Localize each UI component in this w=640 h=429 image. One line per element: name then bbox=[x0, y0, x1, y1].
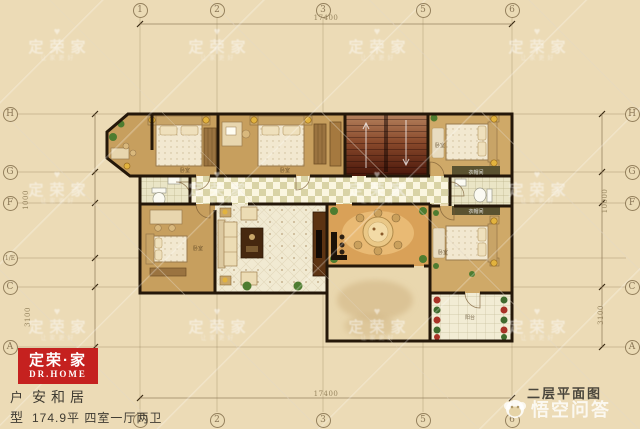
plant bbox=[433, 263, 439, 269]
plant bbox=[469, 271, 475, 277]
balcony-label: 阳台 bbox=[465, 314, 475, 321]
bed-bedroom1 bbox=[148, 116, 210, 166]
bedroom2-label: 卧室 bbox=[280, 167, 290, 174]
wardrobe bbox=[204, 128, 216, 166]
dim-bottom: 17400 bbox=[306, 390, 346, 398]
logo-chinese: 定荣·家 bbox=[29, 353, 87, 370]
plant bbox=[433, 210, 439, 216]
bed-bedroom2 bbox=[250, 116, 312, 166]
floorplan-canvas: 卧室 卧室 卧室 卧室 卧室 阳台 衣帽间 衣帽间 ♥定荣家让家更好♥定荣家让家… bbox=[0, 0, 640, 429]
dim-right-lower: 3100 bbox=[597, 295, 605, 335]
bedroom4-label: 卧室 bbox=[438, 249, 448, 256]
bed-bedroom5 bbox=[146, 234, 187, 264]
closet-label: 衣帽间 bbox=[468, 169, 483, 176]
wardrobe bbox=[314, 124, 326, 164]
cabinet bbox=[150, 268, 186, 276]
dim-left-lower: 3100 bbox=[24, 297, 32, 337]
dim-left-upper: 1000 bbox=[22, 180, 30, 220]
plant bbox=[109, 133, 117, 141]
dim-right-upper: 10000 bbox=[601, 181, 609, 221]
house-spec: 174.9平 四室一厅两卫 bbox=[32, 409, 162, 426]
bedroom1-label: 卧室 bbox=[180, 167, 190, 174]
toilet-bath2 bbox=[474, 188, 492, 202]
plant bbox=[419, 207, 427, 215]
closet-label: 衣帽间 bbox=[468, 208, 483, 215]
cabinet bbox=[330, 122, 341, 166]
monkey-icon bbox=[503, 397, 527, 421]
plant bbox=[243, 282, 252, 291]
sink bbox=[455, 179, 466, 186]
plant bbox=[294, 282, 303, 291]
desk bbox=[150, 210, 182, 224]
info-label-hu: 户 bbox=[10, 387, 32, 406]
lamp bbox=[124, 163, 130, 169]
plant bbox=[330, 207, 338, 215]
bedroom3-label: 卧室 bbox=[435, 142, 445, 149]
logo-english: DR.HOME bbox=[29, 369, 87, 379]
sink bbox=[168, 177, 180, 184]
desk bbox=[111, 148, 129, 159]
plant bbox=[419, 255, 427, 263]
wukong-qa-watermark: 悟空问答 bbox=[503, 396, 611, 422]
house-info: 户 安和居 型 174.9平 四室一厅两卫 bbox=[10, 387, 162, 427]
info-label-xing: 型 bbox=[10, 407, 32, 426]
dr-home-logo: 定荣·家 DR.HOME bbox=[18, 348, 98, 384]
plant bbox=[431, 115, 438, 122]
qa-watermark-text: 悟空问答 bbox=[531, 396, 611, 422]
dim-top: 17400 bbox=[306, 14, 346, 22]
house-name: 安和居 bbox=[32, 387, 89, 407]
bedroom5-label: 卧室 bbox=[193, 245, 203, 252]
